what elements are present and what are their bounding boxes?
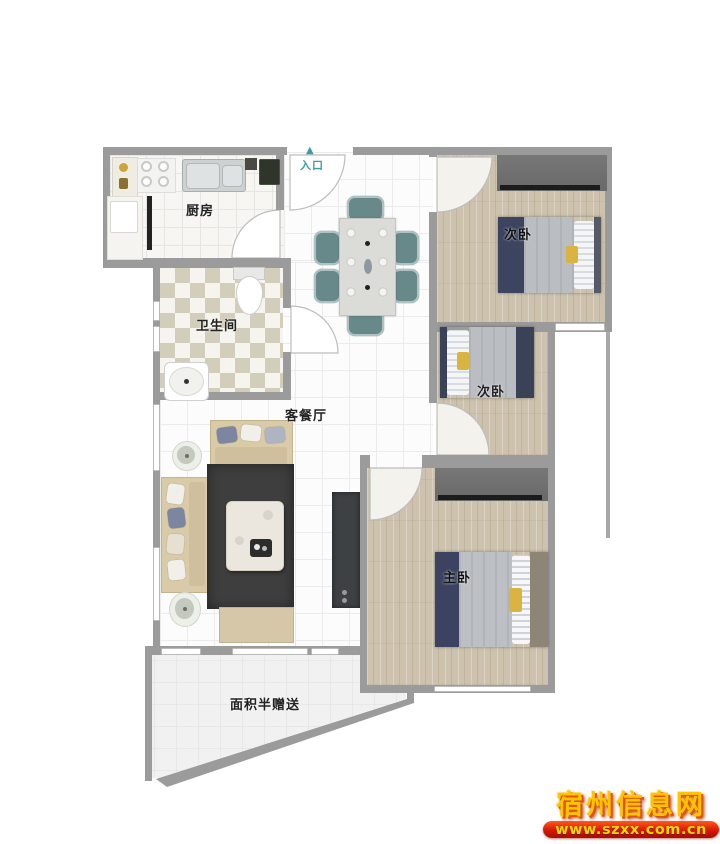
window-living-left-2 [154,548,159,620]
bathroom-label: 卫生间 [196,315,238,334]
dining-table [339,218,396,316]
bed-throw-accent [509,588,522,612]
tv-stand-knob [342,598,347,603]
plant-pot [169,592,201,627]
dining-plate [378,257,388,267]
bedroom-middle-label: 次卧 [477,381,505,400]
wardrobe-master [435,468,548,501]
sofa-seat-line [189,482,205,586]
sofa-pillow [216,426,238,445]
dining-item [365,241,370,246]
window-balcony-1 [162,649,200,654]
kitchen-bottle [119,178,128,189]
window-bathroom-left-1 [154,302,159,320]
bathroom-sink [164,362,209,401]
stove-burner [158,161,169,172]
sofa-pillow [167,559,186,581]
bed-headboard [594,217,601,293]
balcony-label: 面积半赠送 [230,694,300,713]
stove-burner [158,176,169,187]
sink-basin [186,163,220,189]
window-bathroom-left-2 [154,327,159,351]
bed-headboard [530,552,548,647]
entrance-arrow-icon: ▲ [306,146,314,156]
sofa-pillow [167,507,186,529]
watermark-url-banner: www.szxx.com.cn [543,821,719,838]
wall-top-left [103,147,287,155]
sofa-pillow [166,483,186,505]
watermark: 宿州信息网 www.szxx.com.cn [540,791,720,838]
dining-plate [346,257,356,267]
window-void-top [556,324,604,330]
sofa-pillow [166,533,185,554]
window-balcony-2 [233,649,307,654]
entrance-label: 入口 [300,157,324,173]
wall-bedroom-top-left-b [429,212,437,330]
dining-plate [378,287,388,297]
stove-burner [141,161,152,172]
dining-chair [314,231,341,265]
wardrobe-front-strip [500,185,600,190]
wall-right-main [548,322,555,693]
balcony-wall-topleft [145,646,367,781]
table-decor [263,510,273,520]
dining-plate [346,287,356,297]
dining-plate [346,228,356,238]
tray-item [262,546,267,551]
bed-throw-accent [457,352,469,370]
bed-throw-accent [566,246,578,263]
watermark-site-url: www.szxx.com.cn [555,822,707,838]
sofa-pillow [264,426,285,444]
master-bedroom-label: 主卧 [443,567,471,586]
bedroom-top-label: 次卧 [504,224,532,243]
wall-bedroom-middle-left [429,330,437,403]
kitchen-bottle [119,163,128,172]
wall-bedroom-top-left-a [429,147,437,157]
bed-headboard [440,327,447,398]
dining-chair [392,231,419,265]
kitchen-sink [182,159,246,192]
dining-chair [392,269,419,303]
watermark-site-name: 宿州信息网 [540,791,720,821]
sofa-pillow [240,424,262,442]
stove-burner [141,176,152,187]
kitchen-counter-edge [147,196,152,250]
table-decor [235,536,244,545]
kitchen-label: 厨房 [186,200,214,219]
tray-item [254,544,260,550]
sink-basin [222,165,243,187]
bathroom-sink-drain [184,379,189,384]
wall-top-right [353,147,612,155]
wall-bathroom-right-upper [283,268,291,308]
kitchen-rack [245,158,257,170]
kitchen-counter-left [107,196,143,260]
dining-centerpiece [364,259,372,274]
plant-pot [172,441,202,471]
stove [137,158,176,193]
sofa-main [161,477,211,593]
kitchen-cabinet-small [112,157,138,197]
kitchen-appliance [110,201,138,233]
dining-chair [314,269,341,303]
dining-plate [378,228,388,238]
tv-stand-knob [342,590,347,595]
wardrobe-top-bedroom [497,155,607,191]
wall-master-top-b [422,455,555,468]
floorplan-canvas: ▲ 入口 厨房 卫生间 客餐厅 次卧 次卧 主卧 面积半赠送 宿州信息网 www… [0,0,720,844]
wall-master-left [360,455,367,693]
bed-footboard [516,327,534,398]
window-living-left-1 [154,405,159,470]
coffee-table [226,501,284,571]
console-bench [219,607,294,643]
refrigerator [259,159,280,185]
table-tray [250,539,272,557]
living-dining-label: 客餐厅 [285,405,327,424]
dining-item [365,285,370,290]
tv-stand [332,492,360,608]
wall-void-right-line [606,332,610,538]
window-master-bottom [435,687,530,691]
window-balcony-3 [312,649,338,654]
wardrobe-front-strip [438,495,542,500]
sofa-seat-line [215,447,287,465]
